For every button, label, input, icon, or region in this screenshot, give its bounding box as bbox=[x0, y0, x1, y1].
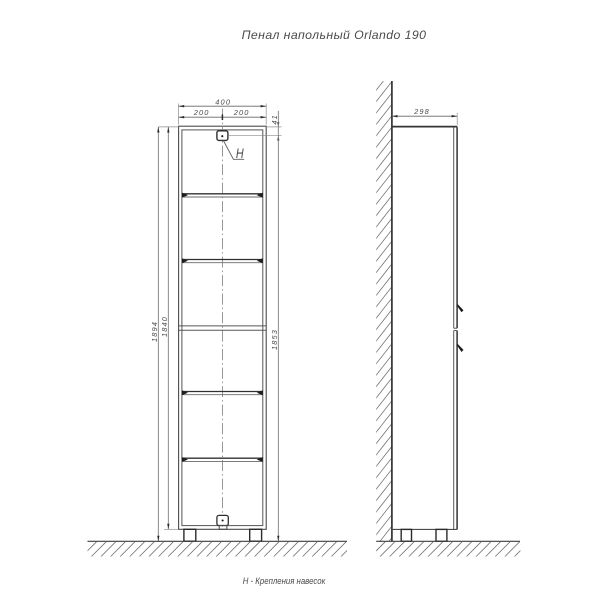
svg-text:200: 200 bbox=[193, 108, 210, 117]
svg-text:H: H bbox=[236, 145, 244, 161]
svg-text:Н - Крепления навесок: Н - Крепления навесок bbox=[243, 575, 326, 586]
svg-text:1894: 1894 bbox=[150, 321, 159, 342]
svg-text:Пенал напольный Orlando 190: Пенал напольный Orlando 190 bbox=[242, 28, 427, 42]
svg-text:400: 400 bbox=[215, 97, 231, 106]
svg-text:298: 298 bbox=[413, 107, 430, 116]
svg-text:1853: 1853 bbox=[270, 329, 279, 350]
svg-text:1840: 1840 bbox=[160, 316, 169, 337]
svg-text:41: 41 bbox=[270, 114, 279, 125]
svg-text:200: 200 bbox=[233, 108, 250, 117]
